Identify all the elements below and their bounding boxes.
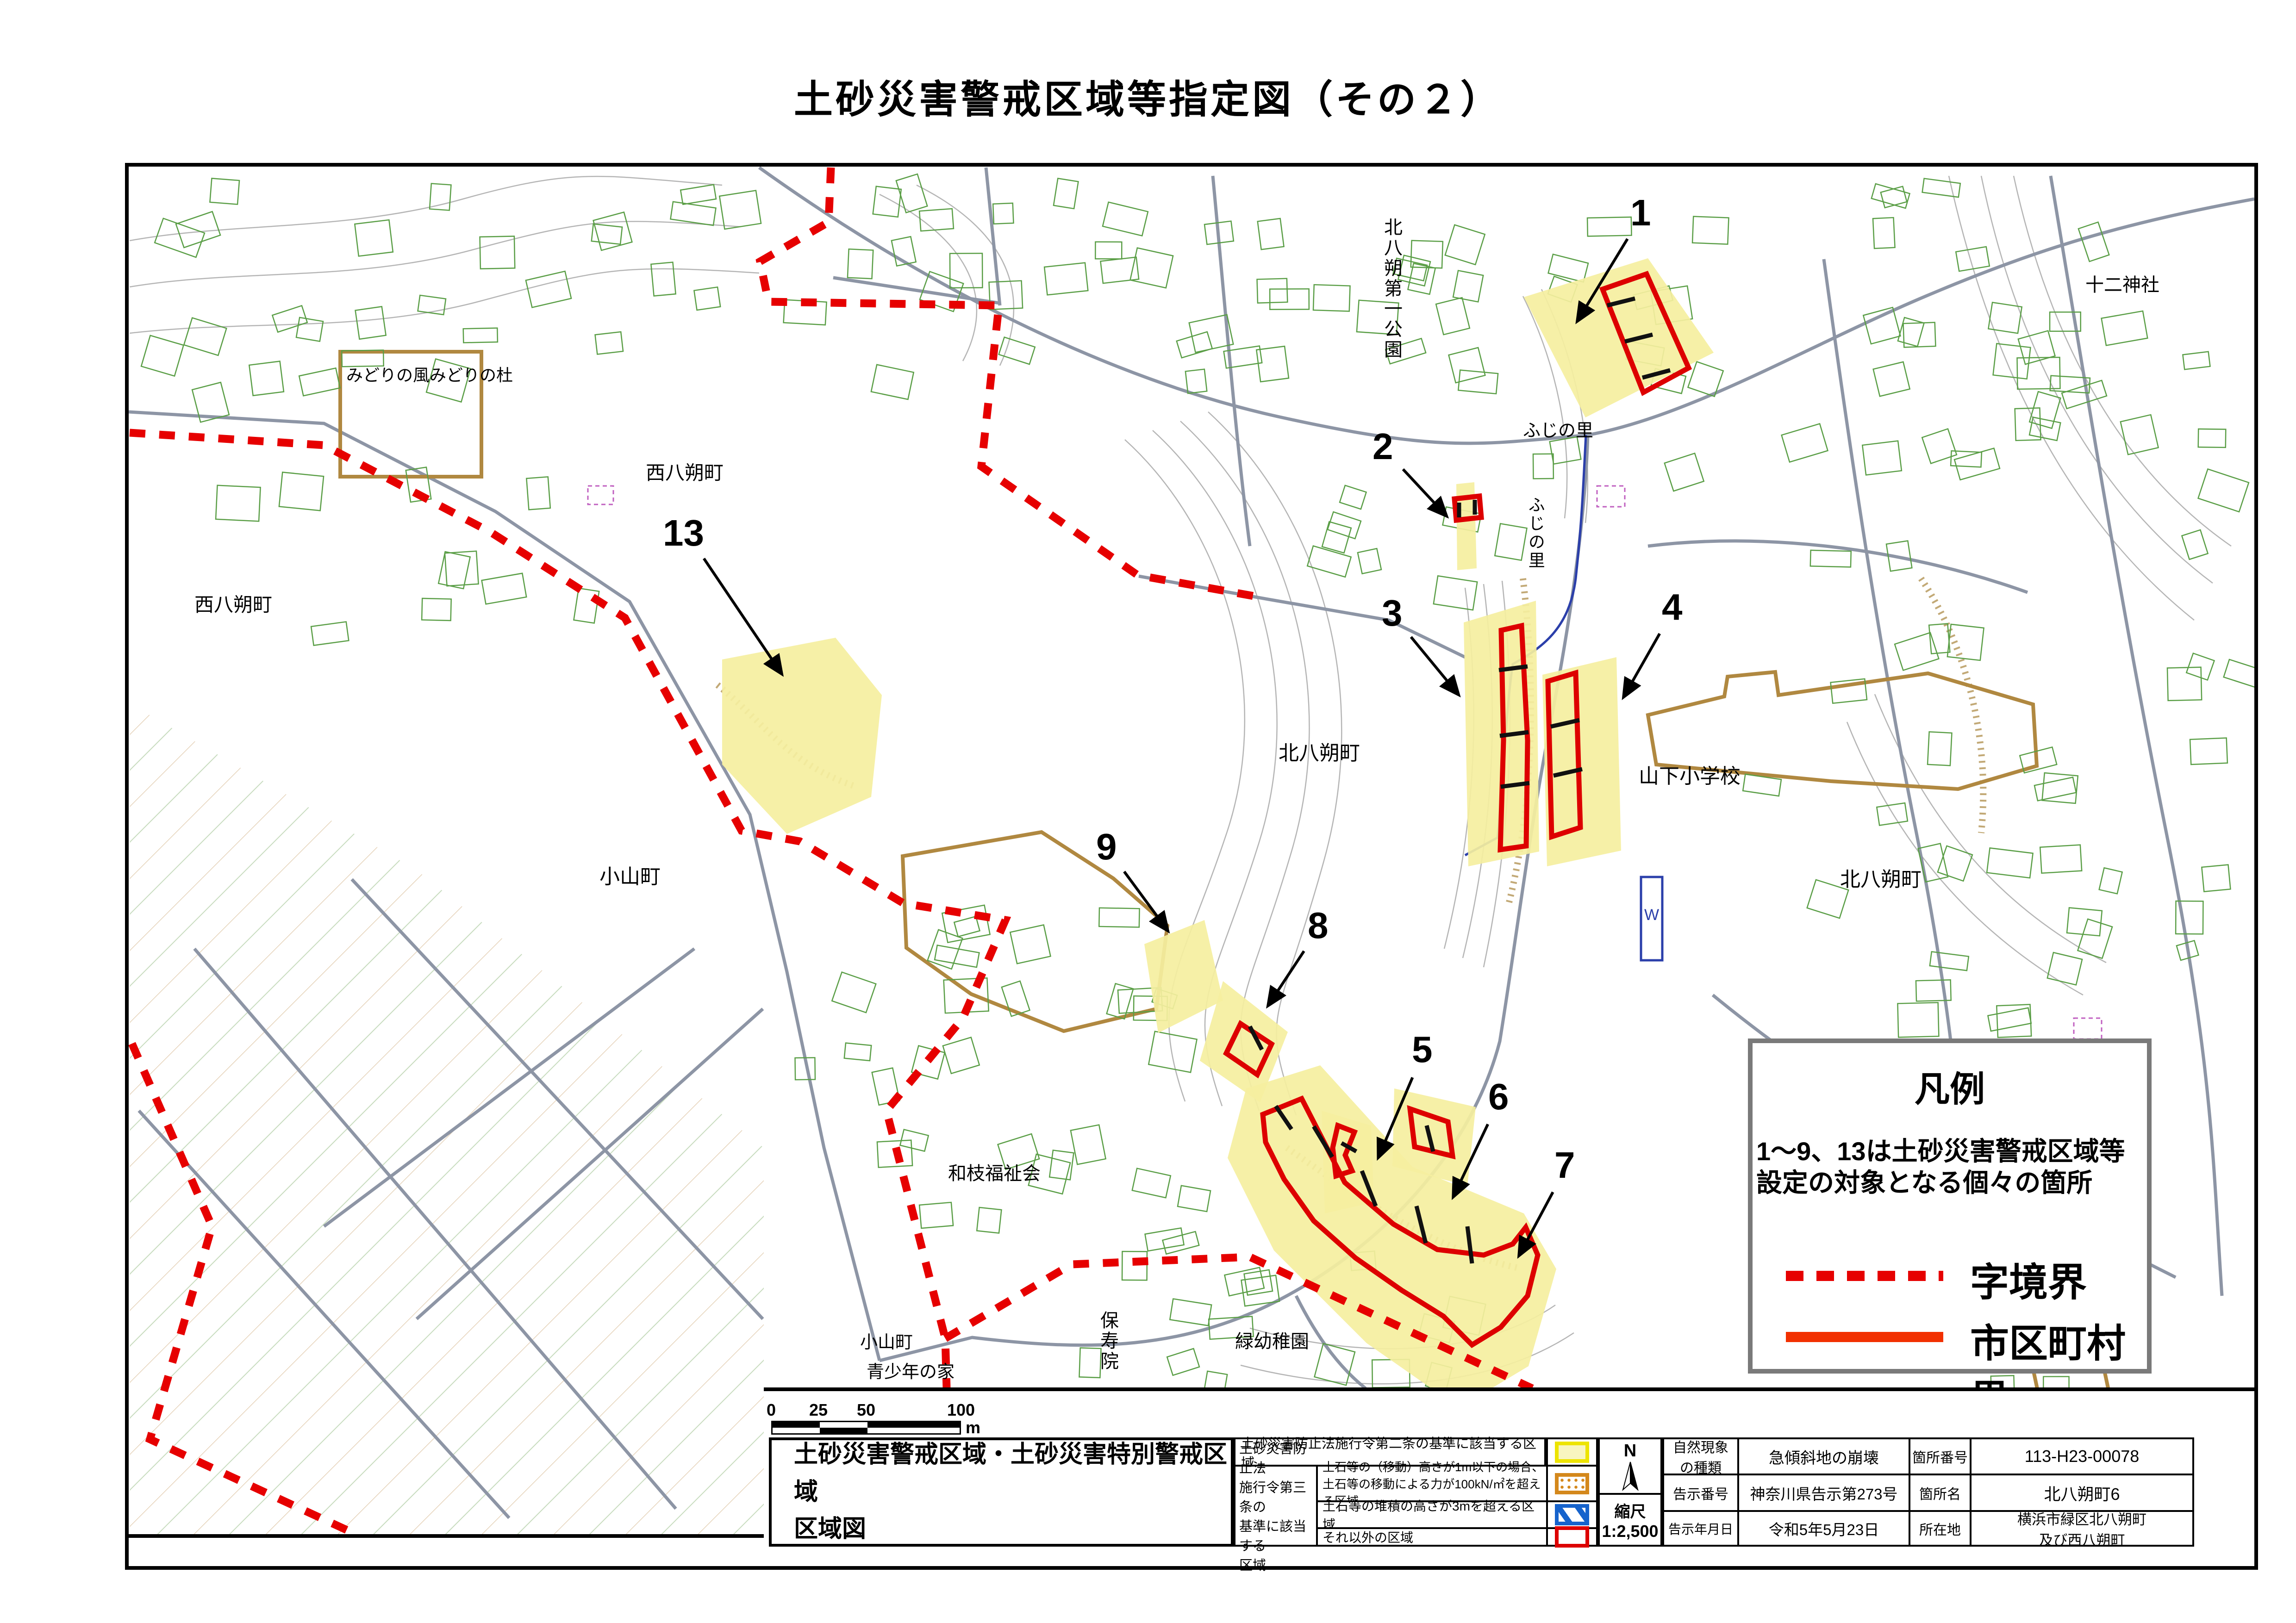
- red-zone-swatch: [1555, 1526, 1589, 1548]
- zone-row3-label: 土石等の堆積の高さが3mを超える区域: [1316, 1500, 1548, 1529]
- solid-line-sample: [1786, 1332, 1943, 1342]
- area-number-6: 6: [1488, 1078, 1509, 1115]
- map-bottom-rule: [129, 1534, 764, 1538]
- meta-value: 横浜市緑区北八朔町 及び西八朔町: [1970, 1510, 2194, 1547]
- scale-bar-graphic: [771, 1421, 961, 1435]
- meta-label: 告示年月日: [1662, 1510, 1739, 1547]
- meta-value: 令和5年5月23日: [1737, 1510, 1910, 1547]
- meta-label: 箇所名: [1909, 1474, 1972, 1512]
- scale-tick: 25: [809, 1400, 828, 1420]
- scale-tick: 0: [767, 1400, 776, 1420]
- marker-arrow: [1578, 239, 1628, 321]
- marker-arrow: [1403, 469, 1446, 516]
- legend-row-aza-boundary: 字境界: [1753, 1260, 2147, 1292]
- legend-box: 凡例 1～9、13は土砂災害警戒区域等 設定の対象となる個々の箇所 字境界 市区…: [1748, 1038, 2152, 1374]
- yellow-zone-swatch: [1555, 1442, 1589, 1463]
- north-arrow-icon: [1616, 1461, 1644, 1492]
- meta-label: 自然現象 の種類: [1662, 1437, 1739, 1475]
- dashed-line-sample: [1786, 1271, 1943, 1281]
- marker-arrow: [1268, 951, 1304, 1005]
- area-number-9: 9: [1096, 828, 1117, 865]
- legend-row-municipal-boundary: 市区町村界: [1753, 1321, 2147, 1353]
- zone-row2-swatch: [1546, 1465, 1598, 1502]
- marker-arrow: [1411, 637, 1458, 694]
- zone-row4-label: それ以外の区域: [1316, 1527, 1548, 1547]
- dashed-line-label: 字境界: [1970, 1251, 2087, 1307]
- zone-legend-table: 土砂災害防止法施行令第二条の基準に該当する区域 土砂災害防止法 施行令第三条の …: [1234, 1437, 1598, 1547]
- marker-arrow: [1379, 1077, 1412, 1157]
- meta-value: 神奈川県告示第273号: [1737, 1474, 1910, 1512]
- scale-tick: 100: [947, 1400, 975, 1420]
- zone-row3-swatch: [1546, 1500, 1598, 1529]
- marker-arrow: [704, 559, 781, 673]
- meta-value: 113-H23-00078: [1970, 1437, 2194, 1475]
- legend-title: 凡例: [1753, 1061, 2147, 1112]
- area-number-4: 4: [1662, 589, 1683, 626]
- sheet-title-line1: 土砂災害警戒区域・土砂災害特別警戒区域: [794, 1436, 1231, 1511]
- blue-zone-swatch: [1555, 1504, 1589, 1525]
- scale-tick: 50: [857, 1400, 875, 1420]
- compass-n-label: N: [1600, 1441, 1660, 1461]
- marker-arrow: [1624, 634, 1660, 696]
- marker-arrow: [1454, 1124, 1488, 1196]
- meta-value: 北八朔町6: [1970, 1474, 2194, 1512]
- area-number-2: 2: [1373, 428, 1393, 465]
- metadata-table: 自然現象 の種類 急傾斜地の崩壊 箇所番号 113-H23-00078 告示番号…: [1662, 1437, 2194, 1547]
- orange-zone-swatch: [1555, 1473, 1589, 1494]
- marker-arrow: [1124, 871, 1167, 930]
- scale-label: 縮尺: [1615, 1499, 1646, 1522]
- area-number-7: 7: [1554, 1147, 1575, 1184]
- zone-row4-swatch: [1546, 1527, 1598, 1547]
- scale-unit: m: [966, 1418, 980, 1437]
- sheet-title-box: 土砂災害警戒区域・土砂災害特別警戒区域 区域図: [769, 1437, 1234, 1547]
- area-number-8: 8: [1308, 907, 1329, 944]
- designation-map-sheet: 土砂災害警戒区域等指定図（その２）: [0, 0, 2296, 1623]
- meta-value: 急傾斜地の崩壊: [1737, 1437, 1910, 1475]
- area-number-13: 13: [663, 515, 704, 552]
- zone-row1-swatch: [1546, 1437, 1598, 1467]
- marker-arrow-layer: [0, 0, 2296, 1623]
- scale-value: 1:2,500: [1602, 1522, 1658, 1541]
- area-number-1: 1: [1630, 194, 1651, 231]
- meta-label: 箇所番号: [1909, 1437, 1972, 1475]
- marker-arrow: [1519, 1192, 1553, 1255]
- zone-group-label: 土砂災害防止法 施行令第三条の 基準に該当する 区域: [1234, 1465, 1318, 1547]
- meta-label: 告示番号: [1662, 1474, 1739, 1512]
- area-number-3: 3: [1382, 595, 1403, 632]
- sheet-title-line2: 区域図: [794, 1511, 1231, 1548]
- scale-cell: 縮尺 1:2,500: [1598, 1493, 1662, 1547]
- compass-cell: N: [1598, 1437, 1662, 1495]
- info-strip: 0 25 50 100 m 土砂災害警戒区域・土砂災害特別警戒区域 区域図 土砂: [764, 1387, 2258, 1567]
- legend-description: 1～9、13は土砂災害警戒区域等 設定の対象となる個々の箇所: [1756, 1136, 2147, 1199]
- meta-label: 所在地: [1909, 1510, 1972, 1547]
- area-number-5: 5: [1412, 1031, 1433, 1068]
